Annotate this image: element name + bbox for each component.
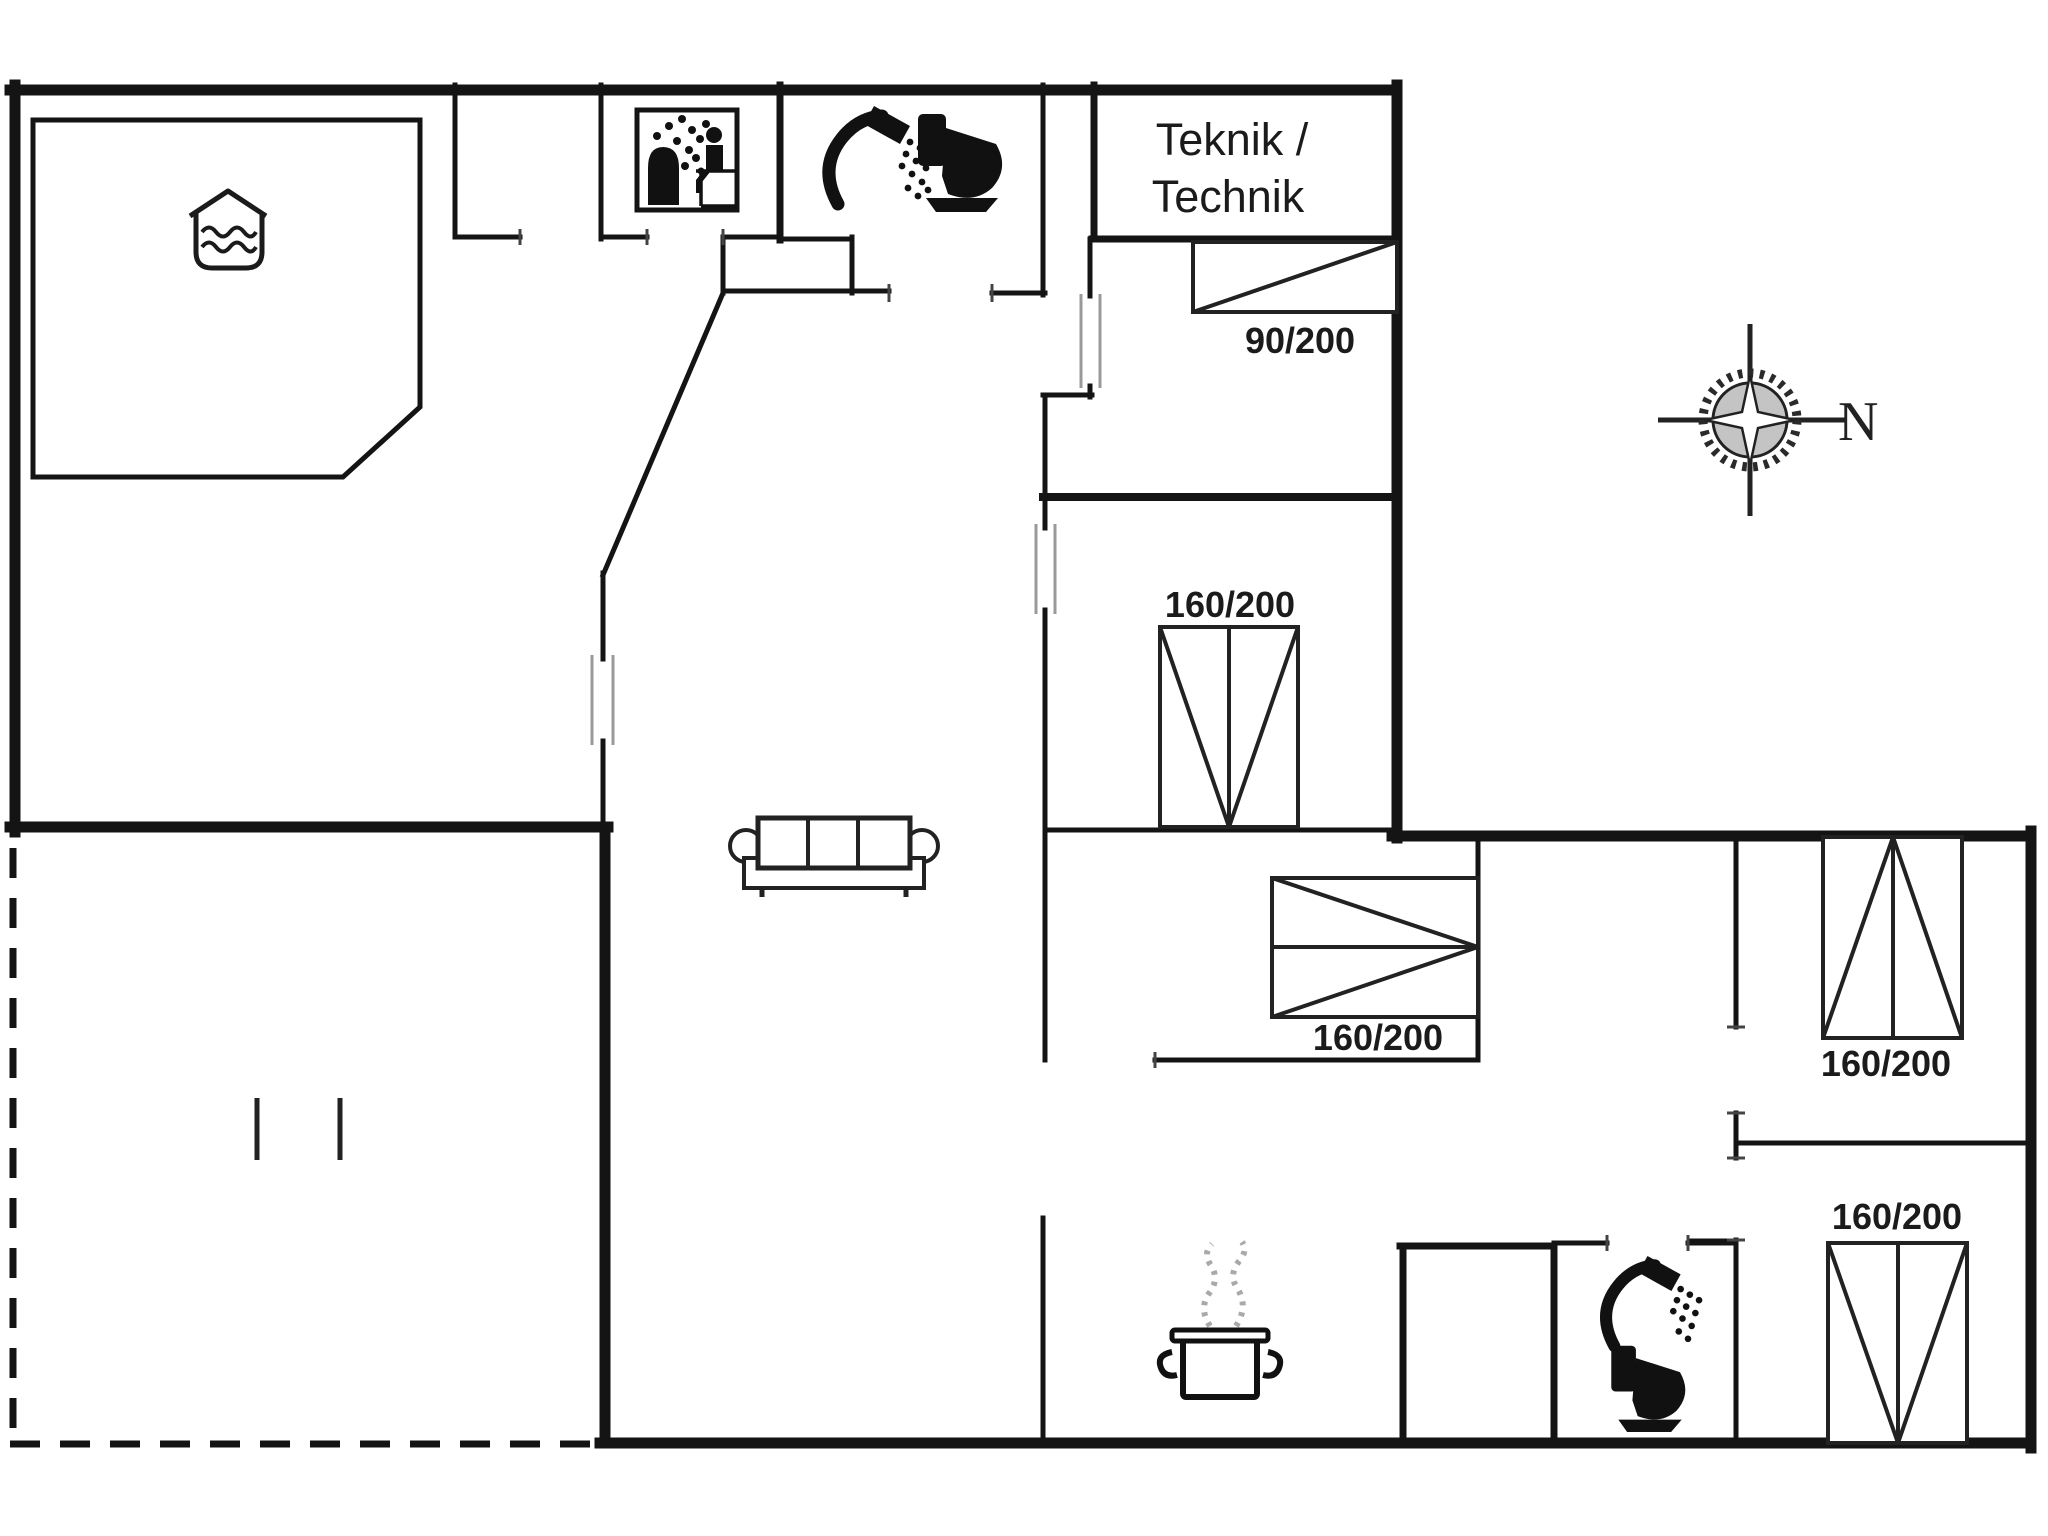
bed-size-label: 160/200 [1832,1196,1962,1237]
compass-rose-icon [1658,324,1846,516]
bed-double [1828,1243,1967,1443]
technical-room-label-line1: Teknik / [1156,114,1309,165]
terrace-outline [10,848,596,1444]
floor-plan-drawing: Teknik / Technik 90/200 160/200 160/200 … [0,0,2048,1536]
toilet-icon [1611,1346,1685,1432]
bed-single [1193,242,1397,312]
bed-size-label: 90/200 [1245,320,1355,361]
shower-icon [1606,1256,1702,1346]
sauna-icon [637,110,737,210]
bed-double [1823,837,1962,1038]
sofa-icon [730,818,938,897]
bed-size-label: 160/200 [1165,584,1295,625]
door-window-openings [592,294,1100,745]
whirlpool-icon [190,191,266,268]
bed-double [1272,878,1478,1017]
steam-icon [1204,1242,1245,1326]
toilet-icon [918,114,1002,212]
technical-room-label-line2: Technik [1152,171,1305,222]
bed-double [1160,627,1298,827]
cooking-pot-icon [1160,1330,1280,1397]
shower-icon [829,106,933,204]
terrace-posts [257,1098,340,1160]
pool-outline [33,120,420,477]
door-jamb-ticks [520,229,1745,1251]
floor-plan-canvas: Teknik / Technik 90/200 160/200 160/200 … [0,0,2048,1536]
bed-size-label: 160/200 [1313,1017,1443,1058]
bed-size-label: 160/200 [1821,1043,1951,1084]
compass-north-label: N [1838,391,1878,453]
